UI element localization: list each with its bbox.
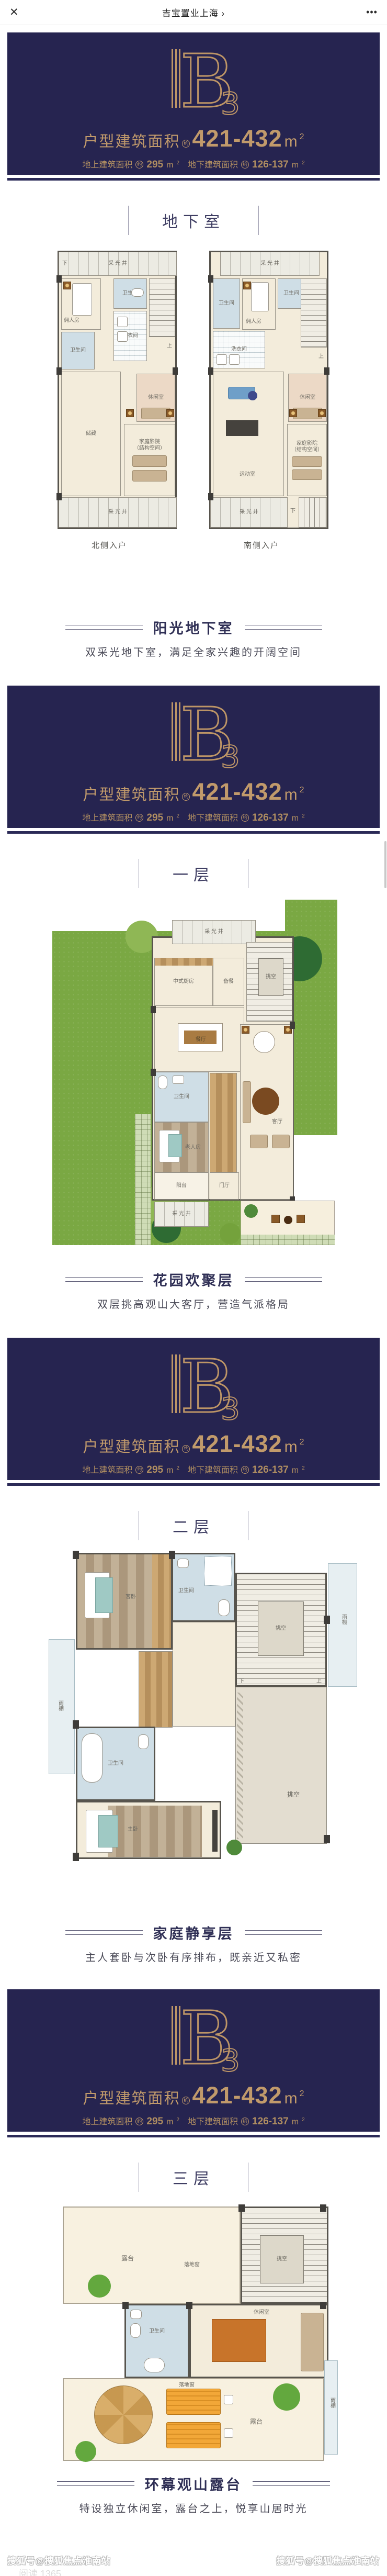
stairs: 挑空 (241, 2207, 328, 2304)
area-label: 户型建筑面积 (83, 129, 180, 151)
floor-plan-basement: 下 采 光 井 佣人房 卫生间 洗衣间 卫生间 上 休闲室 储藏 (52, 247, 335, 561)
hall-corridor (210, 1073, 237, 1172)
floor-plan-level1: 采 光 井 中式厨房 备餐 挑空 下 上 餐厅 (47, 900, 340, 1245)
b3-logo: B 3 (141, 1999, 246, 2081)
light-well: 采 光 井 (220, 252, 320, 276)
tree (220, 1223, 241, 1244)
area-subline: 地上建筑面积约295m2 地下建筑面积约126-137m2 (82, 158, 304, 171)
light-well: 下 采 光 井 (59, 252, 177, 276)
b3-banner-2: B 3 户型建筑面积约421-432m2 地上建筑面积约295m2 地下建筑面积… (7, 686, 380, 828)
approx-mark: 约 (182, 140, 190, 148)
balcony: 阳台 (154, 1172, 209, 1200)
stairs (301, 278, 327, 348)
sun-lounger (166, 2389, 221, 2415)
caption-floor2: 家庭静享层 主人套卧与次卧有序排布，既亲近又私密 (0, 1866, 387, 1964)
section-heading-basement: 地下室 (0, 181, 387, 236)
umbrella (94, 2385, 153, 2444)
room-bath: 卫生间 (61, 332, 95, 369)
room-guest-bedroom: 客卧 (76, 1553, 173, 1650)
light-well: 采 光 井 (172, 920, 256, 944)
basement-unit-south: 采 光 井 卫生间 佣人房 卫生间 洗衣间 上 休闲室 运动室 (209, 251, 328, 529)
basement-unit-north: 下 采 光 井 佣人房 卫生间 洗衣间 卫生间 上 休闲室 储藏 (58, 251, 177, 529)
light-well: 采 光 井 (59, 497, 177, 528)
account-title[interactable]: 吉宝置业上海 › (162, 6, 225, 19)
area-line: 户型建筑面积约421-432m2 (83, 125, 304, 152)
stairs (299, 497, 327, 528)
room-storage: 储藏 (61, 372, 121, 496)
light-well: 采 光 井 (154, 1202, 209, 1227)
b3-banner-1: B 3 户型建筑面积约421-432m2 地上建筑面积约295m2 地下建筑面积… (7, 32, 380, 175)
close-icon[interactable]: ✕ (9, 6, 30, 19)
wechat-top-bar: ✕ 吉宝置业上海 › ••• (0, 0, 387, 25)
caption-floor3: 环幕观山露台 特设独立休闲室，露台之上，悦享山居时光 (0, 2465, 387, 2515)
stairs: 挑空 (246, 942, 292, 1022)
caption-floor1: 花园欢聚层 双层挑高观山大客厅，营造气派格局 (0, 1245, 387, 1311)
room-bath: 卫生间 (213, 278, 240, 329)
floor-plan-level2: 客卧 卫生间 挑空 下 上 卫生间 (47, 1552, 340, 1866)
svg-text:3: 3 (221, 86, 240, 121)
pavement (241, 1235, 335, 1245)
room-home-theater: 家庭影院 （结构空间） (287, 424, 327, 496)
b3-banner-4: B 3 户型建筑面积约421-432m2 地上建筑面积约295m2 地下建筑面积… (7, 1989, 380, 2132)
room-laundry: 洗衣间 (213, 331, 265, 368)
room-master-bath: 卫生间 (76, 1727, 155, 1801)
foyer: 门厅 (210, 1172, 239, 1200)
watermark-right: 搜狐号@搜狐焦点淮南站 (276, 2553, 380, 2567)
room-bath: 卫生间 (124, 2304, 189, 2378)
read-count: 阅读 1365 (19, 2567, 61, 2576)
caption-basement: 阳光地下室 双采光地下室，满足全家兴趣的开阔空间 (0, 561, 387, 659)
section-heading-floor2: 二层 (0, 1486, 387, 1541)
room-bath: 卫生间 (113, 278, 147, 309)
plant (226, 1840, 242, 1855)
room-master-bedroom: 主卧 (76, 1801, 221, 1859)
rain-canopy-right: 雨棚 (328, 1563, 357, 1687)
stairs: 挑空 (235, 1573, 327, 1687)
room-living: 客厅 (240, 1024, 293, 1200)
svg-text:3: 3 (221, 2043, 240, 2078)
b3-logo: B 3 (141, 42, 246, 124)
room-home-theater: 家庭影院 （结构空间） (124, 424, 175, 496)
entry-label-south: 南侧入户 (244, 540, 279, 551)
more-menu-icon[interactable]: ••• (357, 7, 378, 18)
void-double-height: 挑空 (235, 1687, 327, 1844)
article-page: ✕ 吉宝置业上海 › ••• B 3 户型建筑面积约421-432m2 地上建筑… (0, 0, 387, 2576)
b3-logo: B 3 (141, 695, 246, 777)
room-kitchen: 中式厨房 (154, 958, 213, 1006)
entry-label-north: 北侧入户 (92, 540, 127, 551)
b3-logo: B 3 (141, 1347, 246, 1429)
garden-path (135, 1114, 151, 1245)
terrace-upper: 露台 落地窗 (63, 2207, 241, 2304)
section-heading-floor1: 一层 (0, 834, 387, 889)
room-bath: 卫生间 (154, 1072, 209, 1122)
room-laundry: 洗衣间 (113, 311, 147, 361)
room-prep: 备餐 (213, 958, 244, 1006)
watermark-left: 搜狐号@搜狐焦点淮南站 (7, 2553, 111, 2567)
room-gym: 运动室 (213, 372, 284, 496)
section-heading-floor3: 三层 (0, 2137, 387, 2193)
light-well: 采 光 井 下 (210, 497, 288, 528)
floor-plan-level3: 露台 落地窗 挑空 下 卫生间 休闲室 落地窗 露台 (47, 2203, 340, 2465)
walk-in-closet (139, 1651, 173, 1728)
svg-text:3: 3 (221, 1391, 240, 1427)
sun-lounger (166, 2422, 221, 2448)
scrollbar-thumb[interactable] (384, 841, 386, 888)
room-elder-bedroom: 老人房 (154, 1122, 209, 1172)
spacer (0, 25, 387, 32)
b3-banner-3: B 3 户型建筑面积约421-432m2 地上建筑面积约295m2 地下建筑面积… (7, 1338, 380, 1480)
stairs (149, 278, 175, 337)
rain-canopy: 雨棚 (324, 2360, 338, 2455)
room-dining: 餐厅 (154, 1007, 244, 1072)
hallway (173, 1622, 235, 1727)
area-unit: m (284, 133, 298, 151)
terrace-lower: 落地窗 露台 (63, 2378, 324, 2461)
area-value: 421-432 (192, 125, 282, 152)
rain-canopy-left: 雨棚 (49, 1639, 75, 1774)
room-lounge: 休闲室 (189, 2304, 328, 2378)
house-outline: 采 光 井 中式厨房 备餐 挑空 下 上 餐厅 (152, 936, 294, 1201)
svg-text:3: 3 (221, 739, 240, 775)
room-bath: 卫生间 (173, 1553, 235, 1622)
